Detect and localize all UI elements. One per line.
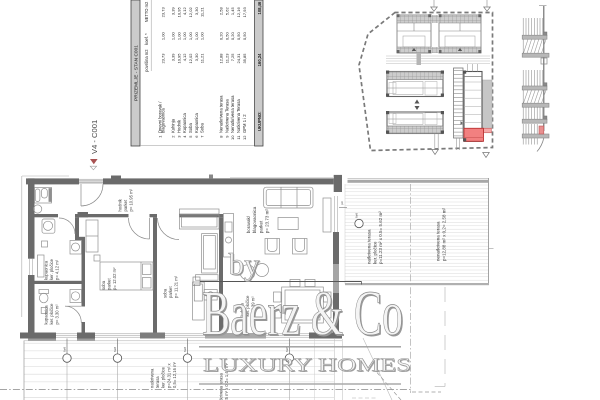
svg-text:blagovaonica: blagovaonica [252,206,257,233]
svg-text:Kupaonica: Kupaonica [182,113,187,133]
svg-text:blagovaonica: blagovaonica [160,108,165,133]
svg-text:4,12: 4,12 [182,53,187,62]
svg-text:V4 - C001: V4 - C001 [90,120,99,154]
svg-text:p= 12.02 m²: p= 12.02 m² [112,267,117,290]
svg-text:1,00: 1,00 [176,32,181,41]
svg-text:24,31: 24,31 [236,53,241,64]
svg-text:Natkrivena Terasa: Natkrivena Terasa [236,99,241,133]
svg-text:Hodnik: Hodnik [176,119,181,133]
svg-text:12,02: 12,02 [188,53,193,64]
svg-text:parket: parket [123,199,128,211]
svg-text:1,00: 1,00 [194,32,199,41]
svg-text:nenatkrivena terasa: nenatkrivena terasa [436,221,441,261]
svg-text:1,00: 1,00 [188,32,193,41]
svg-text:natkrivena: natkrivena [150,368,155,388]
svg-text:0,50: 0,50 [224,32,229,41]
svg-text:0,20: 0,20 [219,32,224,41]
svg-text:p= 3.30 m²: p= 3.30 m² [55,304,60,325]
svg-text:p= 4.12 m²: p= 4.12 m² [55,259,60,280]
svg-text:ker. pločice: ker. pločice [49,258,54,280]
svg-text:terasa: terasa [155,376,160,388]
svg-text:5,62: 5,62 [224,7,229,16]
svg-text:0,20: 0,20 [230,32,235,41]
svg-text:1,00: 1,00 [182,32,187,41]
svg-text:3,39: 3,39 [171,7,176,16]
svg-text:soba: soba [163,288,168,298]
svg-text:parket: parket [258,220,263,233]
svg-text:by: by [229,247,261,282]
svg-text:8ø8: 8ø8 [355,212,359,218]
svg-text:12,88: 12,88 [219,53,224,64]
svg-text:11,23: 11,23 [224,53,229,63]
svg-text:Kuhinja: Kuhinja [171,118,176,133]
svg-text:8ø8: 8ø8 [63,346,67,352]
svg-text:ker. pločice: ker. pločice [49,303,54,325]
svg-text:1,00: 1,00 [171,32,176,41]
svg-text:p= 10.95 m²: p= 10.95 m² [129,188,134,211]
svg-text:3,39: 3,39 [171,53,176,62]
svg-text:kupaonica: kupaonica [44,305,49,325]
svg-text:parket: parket [107,278,112,290]
svg-text:1,00: 1,00 [160,32,165,41]
svg-text:12: 12 [242,135,247,140]
svg-text:površina m2: površina m2 [144,49,149,72]
svg-text:23,73: 23,73 [160,7,165,18]
svg-text:Soba: Soba [188,123,193,133]
svg-text:160,24: 160,24 [257,53,262,66]
svg-text:10,95: 10,95 [176,53,181,64]
svg-text:pm: pm [340,200,344,205]
svg-text:Nenatkrivena terasa: Nenatkrivena terasa [230,95,235,133]
svg-text:8ø8: 8ø8 [183,346,187,352]
svg-text:10: 10 [230,135,235,140]
svg-text:UKUPNO:: UKUPNO: [257,111,262,131]
svg-text:17,93: 17,93 [242,7,247,18]
svg-text:hodnik: hodnik [118,198,123,211]
svg-text:4,12: 4,12 [182,7,187,16]
svg-text:LUXURY HOMES: LUXURY HOMES [203,356,411,376]
svg-text:boravak/: boravak/ [246,215,251,233]
svg-text:23,73: 23,73 [160,53,165,64]
svg-text:NETTO m2: NETTO m2 [144,1,149,22]
svg-text:p=24.31 m² x: p=24.31 m² x [166,363,171,388]
svg-text:0,50: 0,50 [242,32,247,41]
svg-text:kupaonica: kupaonica [44,260,49,280]
svg-text:11,21: 11,21 [200,7,205,17]
svg-text:soba: soba [101,280,106,290]
svg-text:1,00: 1,00 [200,32,205,41]
svg-text:Soba: Soba [200,123,205,133]
svg-text:p=12,88 m² x 0,2= 2,58 m²: p=12,88 m² x 0,2= 2,58 m² [441,207,446,261]
svg-text:ker. pločice: ker. pločice [372,241,377,264]
svg-text:ker. pločice: ker. pločice [161,366,166,388]
svg-text:108,46: 108,46 [257,1,262,14]
svg-text:0,50: 0,50 [236,32,241,41]
svg-text:Nenatkrivena terasa: Nenatkrivena terasa [219,95,224,133]
svg-text:GPM 1 i 2: GPM 1 i 2 [242,114,247,133]
svg-text:koef. *: koef. * [144,33,149,45]
svg-text:10,95: 10,95 [176,7,181,18]
svg-text:11,21: 11,21 [200,53,205,63]
svg-text:natkrivena terasa: natkrivena terasa [367,229,372,264]
svg-text:12,16: 12,16 [236,7,241,18]
svg-text:PRIZEMLJE - STAN C001: PRIZEMLJE - STAN C001 [134,45,140,101]
svg-text:Kupaonica: Kupaonica [194,113,199,133]
svg-text:Natkrivena Terasa: Natkrivena Terasa [224,99,229,133]
svg-text:3,30: 3,30 [194,53,199,62]
svg-text:2,58: 2,58 [219,7,224,16]
svg-text:p= 11.21 m²: p= 11.21 m² [174,275,179,298]
svg-text:7,25: 7,25 [230,53,235,62]
svg-text:Baerz & Co: Baerz & Co [202,278,403,349]
svg-text:8ø8: 8ø8 [113,346,117,352]
svg-text:parket: parket [168,286,173,298]
svg-text:1,45: 1,45 [230,7,235,16]
svg-text:3,30: 3,30 [194,7,199,16]
svg-text:12,02: 12,02 [188,7,193,18]
svg-text:p=11.23 m² x 0.5= 5.62 m²: p=11.23 m² x 0.5= 5.62 m² [378,211,383,264]
svg-text:35,85: 35,85 [242,53,247,64]
svg-text:0,5= 12,16 m²: 0,5= 12,16 m² [172,361,177,388]
svg-text:p= 23.73 m²: p= 23.73 m² [265,209,270,234]
